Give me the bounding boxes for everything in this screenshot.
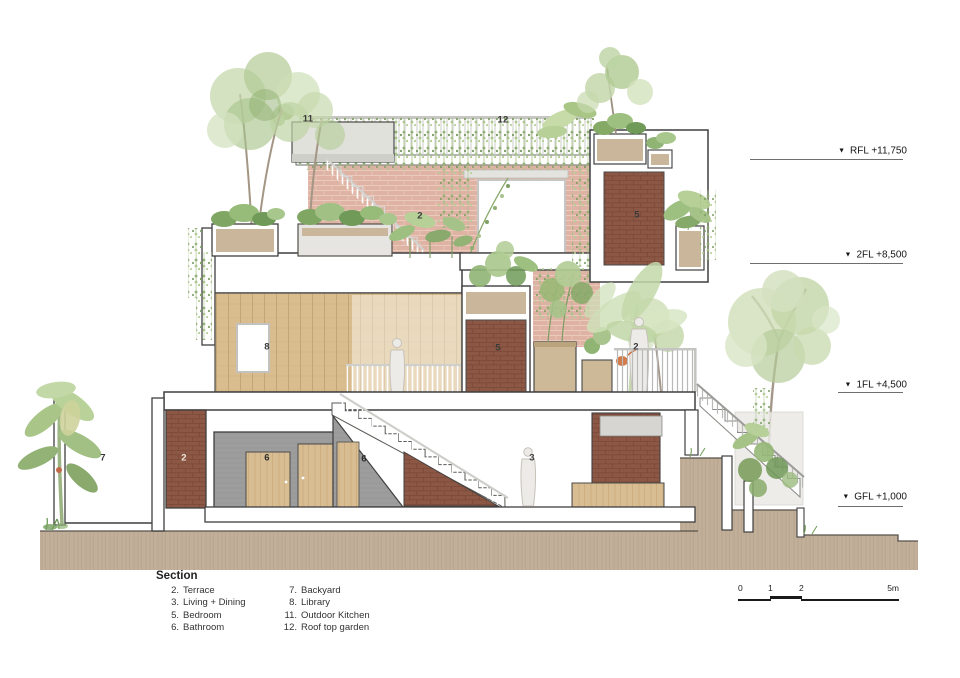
label-bedroom-1fl: 5 <box>495 343 500 354</box>
label-terrace-1fl: 2 <box>633 342 638 353</box>
level-line-2fl <box>750 263 903 264</box>
legend-item: 12.Roof top garden <box>280 622 370 634</box>
label-living-dining: 3 <box>529 453 534 464</box>
section-illustration <box>0 0 960 678</box>
level-triangle-icon: ▼ <box>838 148 845 155</box>
level-triangle-icon: ▼ <box>845 252 852 259</box>
level-marker-1fl: ▼ 1FL +4,500 <box>845 380 907 391</box>
level-label-gfl: GFL +1,000 <box>854 492 907 503</box>
level-label-2fl: 2FL +8,500 <box>856 250 907 261</box>
legend-title: Section <box>156 570 370 582</box>
level-label-1fl: 1FL +4,500 <box>856 380 907 391</box>
scale-bar: 0 1 2 5m <box>738 583 899 601</box>
scale-tick-2: 2 <box>799 583 804 593</box>
scale-tick-0: 0 <box>738 583 743 593</box>
legend-item: 6.Bathroom <box>166 622 262 634</box>
label-terrace-2fl: 2 <box>417 211 422 222</box>
level-marker-rfl: ▼ RFL +11,750 <box>838 146 907 157</box>
scale-segment <box>801 599 899 602</box>
legend: Section 2.Terrace 3.Living + Dining 5.Be… <box>156 570 370 635</box>
legend-column-1: 2.Terrace 3.Living + Dining 5.Bedroom 6.… <box>166 585 262 635</box>
level-marker-gfl: ▼ GFL +1,000 <box>842 492 907 503</box>
level-line-rfl <box>750 159 903 160</box>
bedroom-block-2fl <box>572 47 716 282</box>
legend-item: 8.Library <box>280 597 370 609</box>
level-label-rfl: RFL +11,750 <box>850 146 907 157</box>
label-bathroom: 6 <box>264 453 269 464</box>
scale-bar-labels: 0 1 2 5m <box>738 583 899 594</box>
section-drawing-canvas: ▼ RFL +11,750 ▼ 2FL +8,500 ▼ 1FL +4,500 … <box>0 0 960 678</box>
level-triangle-icon: ▼ <box>845 382 852 389</box>
label-backyard: 7 <box>100 453 105 464</box>
library-1fl <box>215 293 462 392</box>
scale-tick-1: 1 <box>768 583 773 593</box>
scale-segment <box>770 596 802 599</box>
scale-segment <box>738 599 771 602</box>
label-roof-garden: 12 <box>498 115 509 126</box>
label-bathroom-understair: 6 <box>361 454 366 465</box>
level-line-gfl <box>838 506 903 507</box>
legend-item: 5.Bedroom <box>166 610 262 622</box>
label-terrace-gf: 2 <box>181 453 186 464</box>
level-line-1fl <box>838 392 903 393</box>
label-roof-kitchen: 11 <box>303 114 313 125</box>
slab-1fl <box>164 392 695 410</box>
level-marker-2fl: ▼ 2FL +8,500 <box>845 250 907 261</box>
label-library: 8 <box>264 342 269 353</box>
scale-bar-segments <box>738 596 899 601</box>
legend-column-2: 7.Backyard 8.Library 11.Outdoor Kitchen … <box>280 585 370 635</box>
legend-item: 2.Terrace <box>166 585 262 597</box>
legend-item: 11.Outdoor Kitchen <box>280 610 370 622</box>
label-bedroom-2fl: 5 <box>634 210 639 221</box>
scale-tick-5m: 5m <box>887 583 899 593</box>
legend-item: 7.Backyard <box>280 585 370 597</box>
legend-item: 3.Living + Dining <box>166 597 262 609</box>
level-triangle-icon: ▼ <box>842 494 849 501</box>
